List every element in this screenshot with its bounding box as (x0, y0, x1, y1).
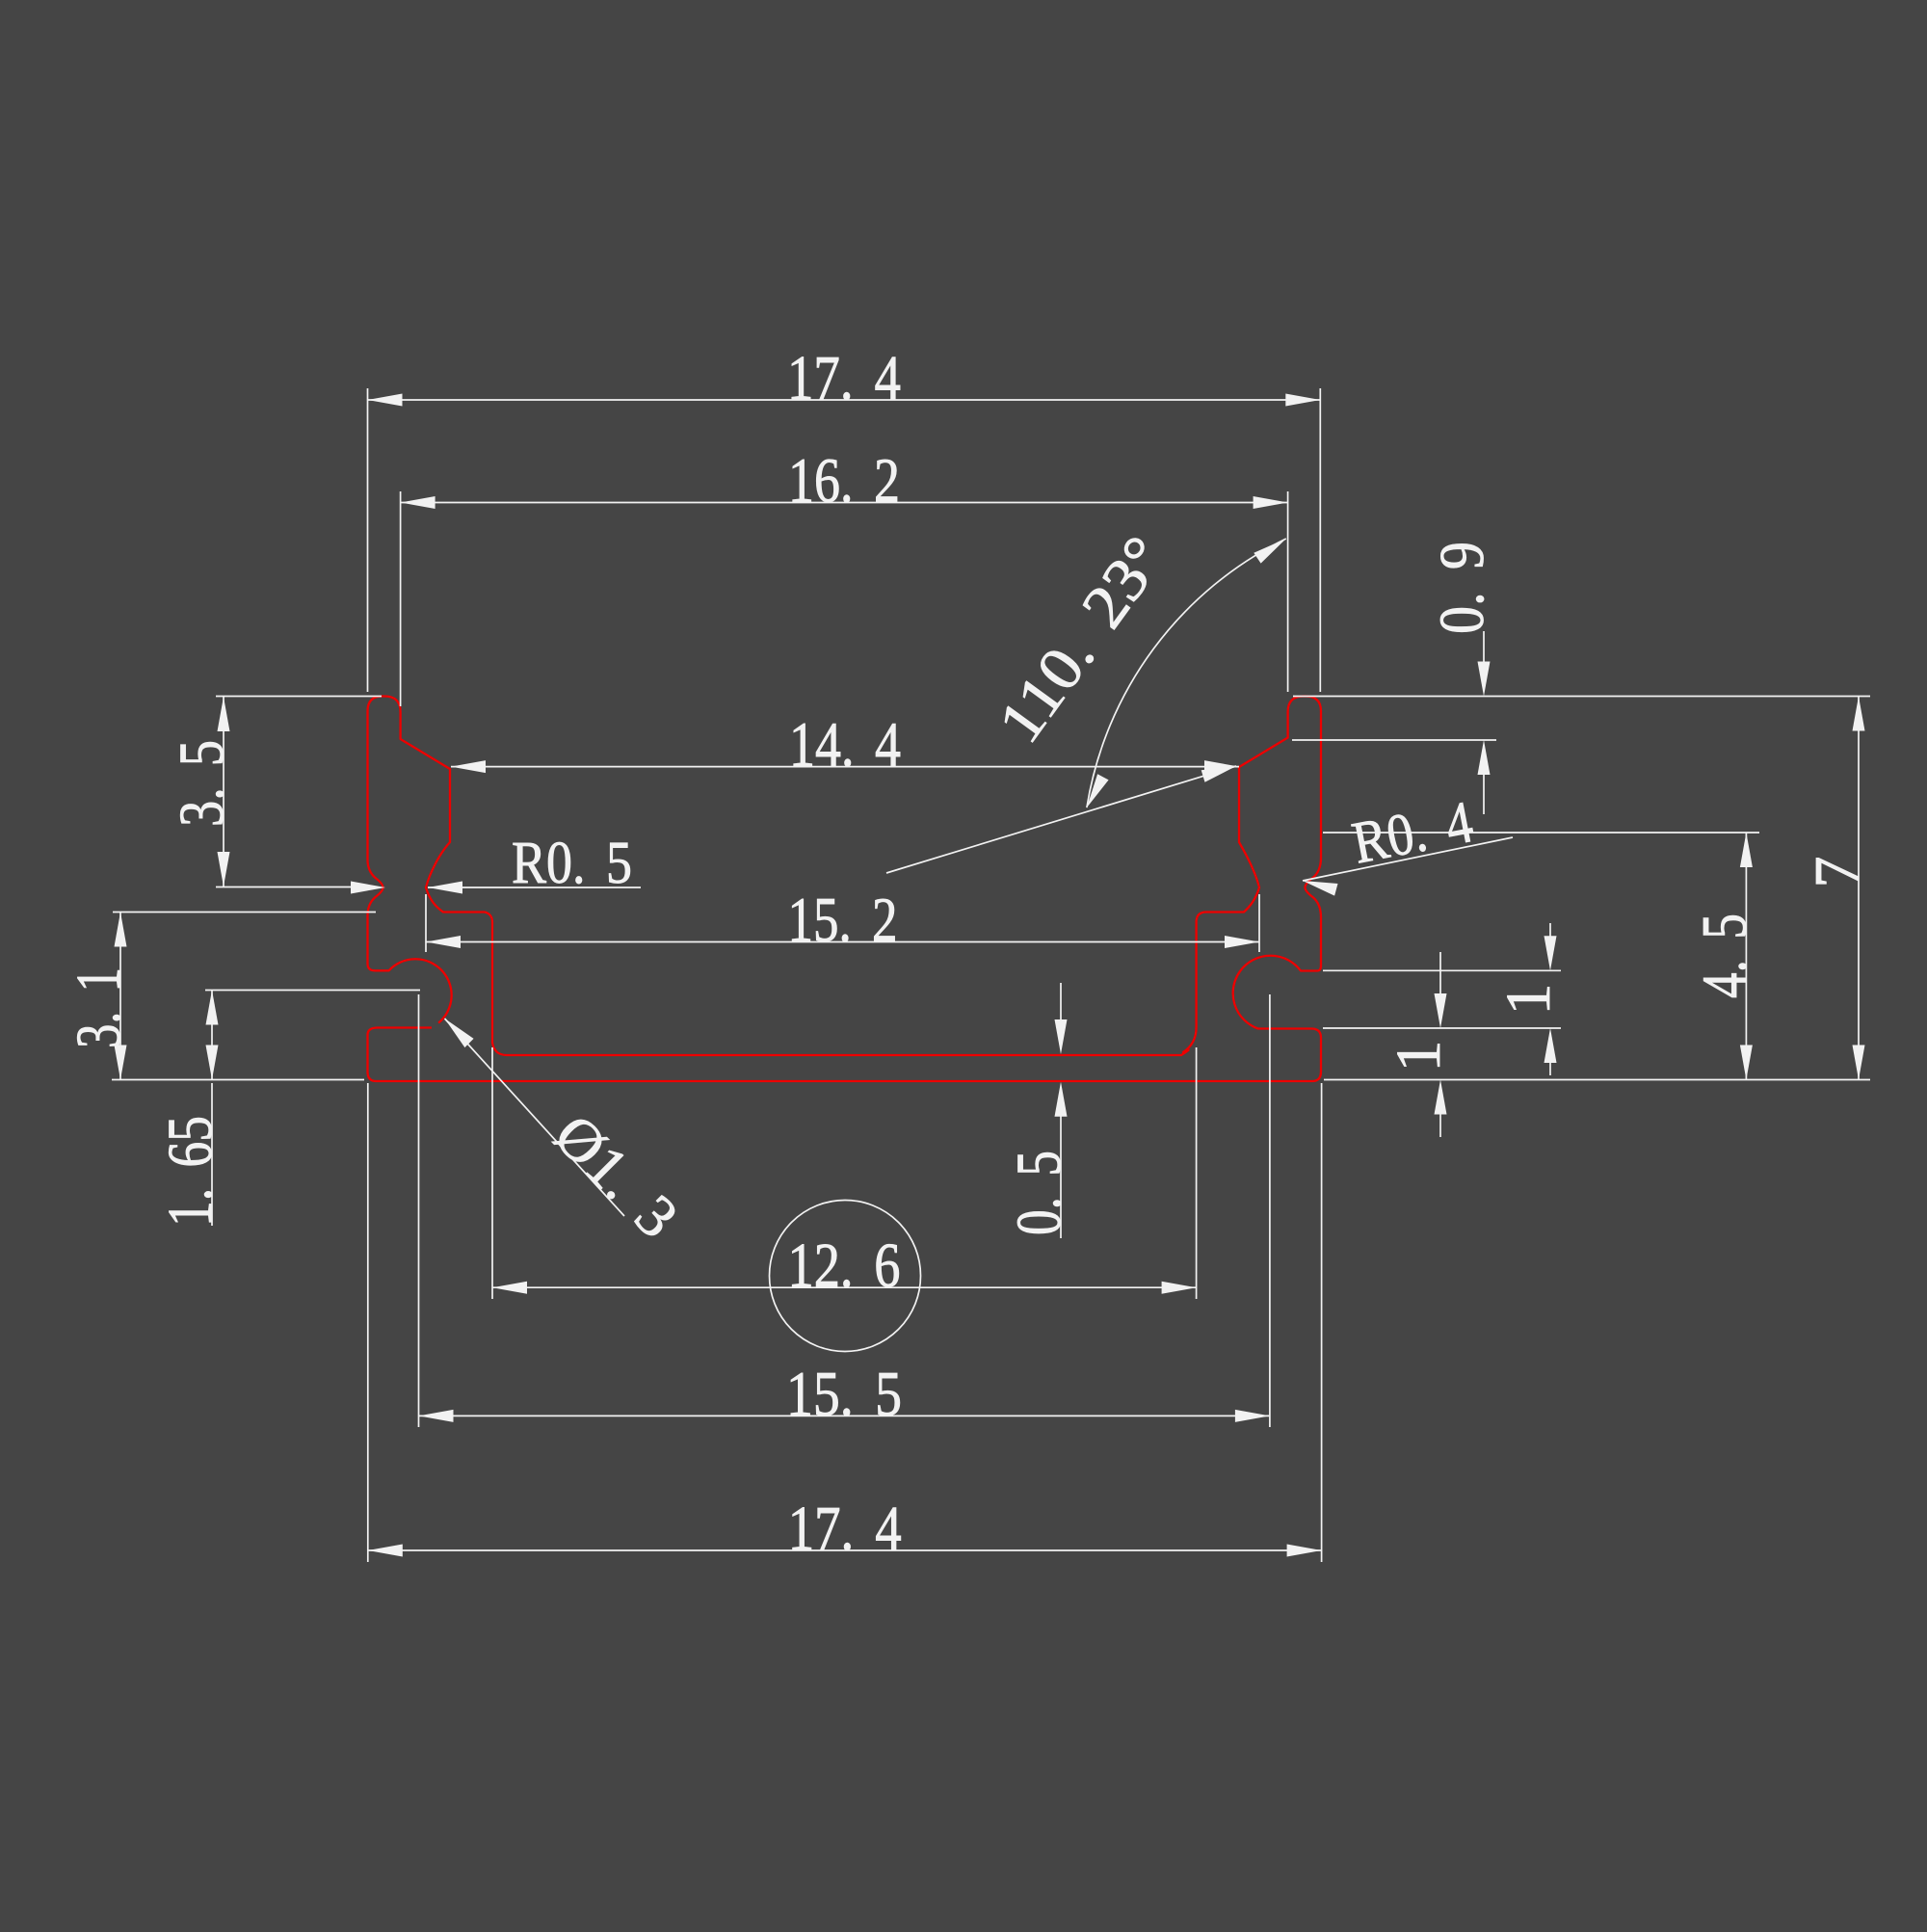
svg-text:14. 4: 14. 4 (789, 710, 901, 781)
svg-text:12. 6: 12. 6 (788, 1231, 901, 1301)
svg-text:1: 1 (1384, 1041, 1454, 1072)
svg-text:4. 5: 4. 5 (1689, 913, 1759, 998)
svg-text:3. 5: 3. 5 (167, 740, 237, 827)
svg-text:7: 7 (1802, 857, 1872, 888)
svg-text:15. 5: 15. 5 (786, 1359, 902, 1429)
svg-text:0. 5: 0. 5 (1004, 1151, 1074, 1235)
svg-text:17. 4: 17. 4 (788, 1494, 902, 1564)
svg-text:16. 2: 16. 2 (788, 446, 900, 516)
svg-text:3. 1: 3. 1 (64, 967, 134, 1048)
svg-text:Ø1. 3: Ø1. 3 (541, 1102, 690, 1251)
svg-text:15. 2: 15. 2 (788, 886, 898, 956)
svg-text:0. 9: 0. 9 (1427, 542, 1497, 634)
svg-text:17. 4: 17. 4 (787, 343, 901, 413)
svg-text:R0. 4: R0. 4 (1347, 789, 1478, 877)
svg-text:110. 23°: 110. 23° (985, 523, 1178, 754)
svg-text:R0. 5: R0. 5 (512, 831, 632, 896)
svg-text:1: 1 (1493, 984, 1564, 1016)
svg-text:1. 65: 1. 65 (155, 1116, 225, 1227)
